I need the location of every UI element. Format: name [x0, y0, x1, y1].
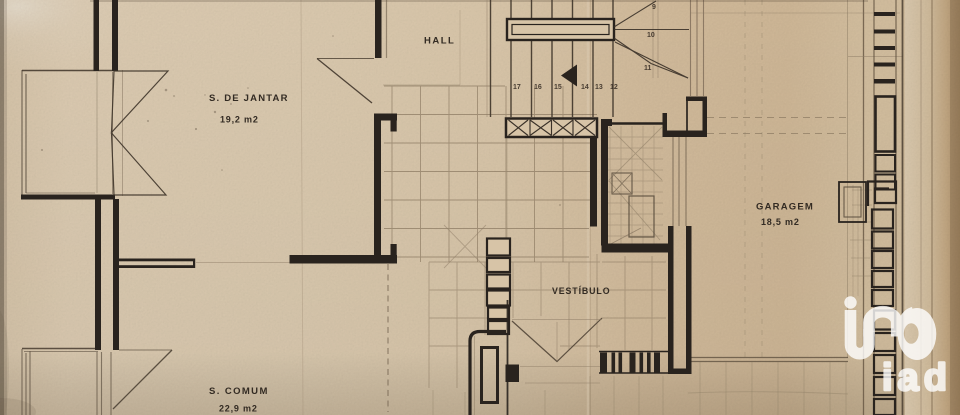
svg-text:16: 16 — [534, 84, 542, 91]
svg-text:14: 14 — [581, 84, 589, 91]
svg-text:9: 9 — [652, 4, 656, 11]
svg-text:10: 10 — [647, 32, 655, 39]
svg-text:13: 13 — [595, 84, 603, 91]
svg-text:VESTÍBULO: VESTÍBULO — [552, 286, 610, 296]
svg-text:GARAGEM: GARAGEM — [756, 202, 814, 213]
svg-text:22,9 m2: 22,9 m2 — [219, 404, 258, 414]
svg-text:11: 11 — [644, 65, 652, 72]
svg-text:iad: iad — [882, 357, 952, 399]
svg-text:19,2 m2: 19,2 m2 — [220, 115, 259, 125]
svg-text:15: 15 — [554, 84, 562, 91]
svg-text:17: 17 — [513, 84, 521, 91]
svg-text:18,5 m2: 18,5 m2 — [761, 217, 800, 227]
svg-text:S. COMUM: S. COMUM — [209, 386, 269, 397]
svg-text:S. DE JANTAR: S. DE JANTAR — [209, 93, 289, 104]
svg-text:12: 12 — [610, 84, 618, 91]
svg-text:HALL: HALL — [424, 36, 455, 47]
